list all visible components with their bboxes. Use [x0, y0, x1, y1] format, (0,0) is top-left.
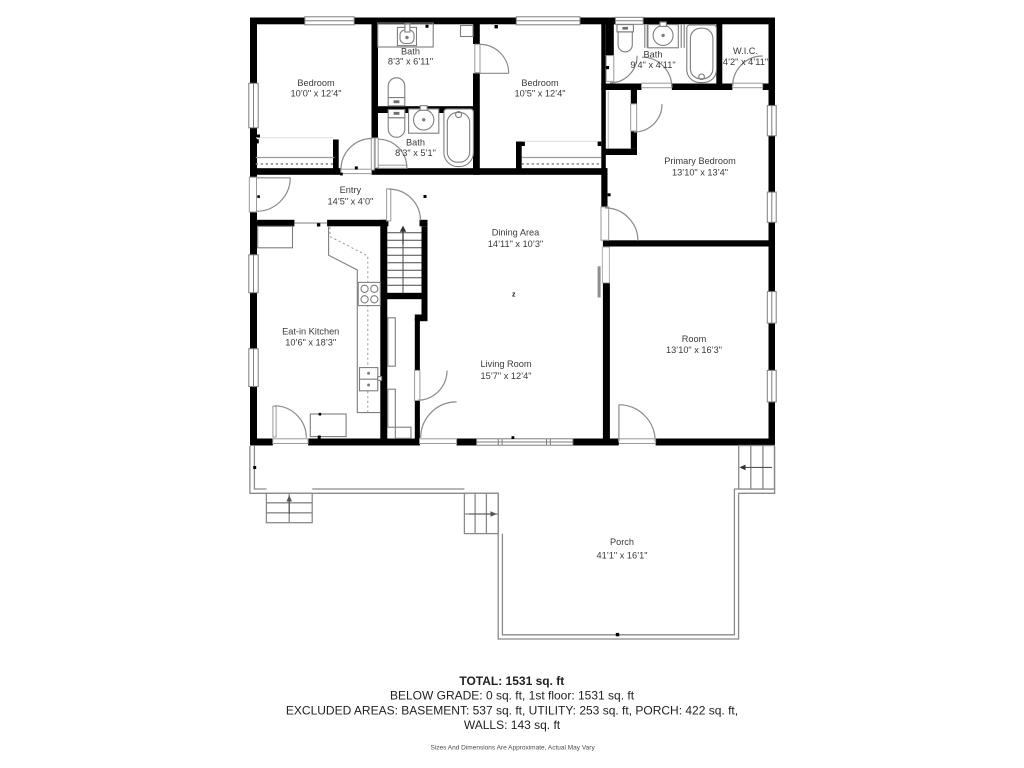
svg-text:Bath: Bath — [644, 50, 663, 60]
svg-text:TOTAL: 1531 sq. ft: TOTAL: 1531 sq. ft — [459, 674, 564, 688]
svg-text:Bath: Bath — [401, 47, 420, 57]
svg-text:9’4" x 4’11": 9’4" x 4’11" — [630, 60, 675, 70]
svg-text:13’10" x 16’3": 13’10" x 16’3" — [666, 345, 722, 355]
svg-text:Bedroom: Bedroom — [521, 78, 559, 88]
svg-text:Dining Area: Dining Area — [492, 228, 540, 238]
svg-text:10’5" x 12’4": 10’5" x 12’4" — [515, 88, 566, 98]
svg-text:13’10" x 13’4": 13’10" x 13’4" — [672, 167, 728, 177]
svg-text:Living Room: Living Room — [480, 359, 531, 369]
svg-text:10’0" x 12’4": 10’0" x 12’4" — [291, 88, 342, 98]
svg-text:15’7" x 12’4": 15’7" x 12’4" — [481, 371, 532, 381]
svg-text:14’11" x 10’3": 14’11" x 10’3" — [488, 239, 543, 249]
svg-text:W.I.C.: W.I.C. — [733, 46, 758, 56]
svg-text:14’5" x 4’0": 14’5" x 4’0" — [327, 197, 373, 207]
svg-text:Bath: Bath — [406, 138, 425, 148]
svg-text:Porch: Porch — [610, 537, 634, 547]
svg-text:Eat-in Kitchen: Eat-in Kitchen — [282, 327, 339, 337]
svg-text:EXCLUDED AREAS: BASEMENT: 537: EXCLUDED AREAS: BASEMENT: 537 sq. ft, UT… — [286, 703, 738, 717]
svg-text:10’6" x 18’3": 10’6" x 18’3" — [285, 337, 336, 347]
svg-text:8’3" x 5’1": 8’3" x 5’1" — [395, 148, 436, 158]
svg-text:8’3" x 6’11": 8’3" x 6’11" — [388, 57, 433, 67]
svg-text:Primary Bedroom: Primary Bedroom — [664, 156, 736, 166]
svg-text:Sizes And Dimensions Are Appro: Sizes And Dimensions Are Approximate, Ac… — [430, 745, 595, 752]
svg-text:41’1" x 16’1": 41’1" x 16’1" — [597, 551, 648, 561]
svg-text:Room: Room — [682, 334, 707, 344]
svg-text:WALLS: 143 sq. ft: WALLS: 143 sq. ft — [464, 718, 561, 732]
svg-text:z: z — [512, 292, 516, 299]
svg-text:Entry: Entry — [340, 185, 362, 195]
svg-text:Bedroom: Bedroom — [297, 78, 335, 88]
svg-text:BELOW GRADE: 0 sq. ft, 1st flo: BELOW GRADE: 0 sq. ft, 1st floor: 1531 s… — [390, 689, 635, 703]
svg-text:4’2" x 4’11": 4’2" x 4’11" — [723, 57, 768, 67]
